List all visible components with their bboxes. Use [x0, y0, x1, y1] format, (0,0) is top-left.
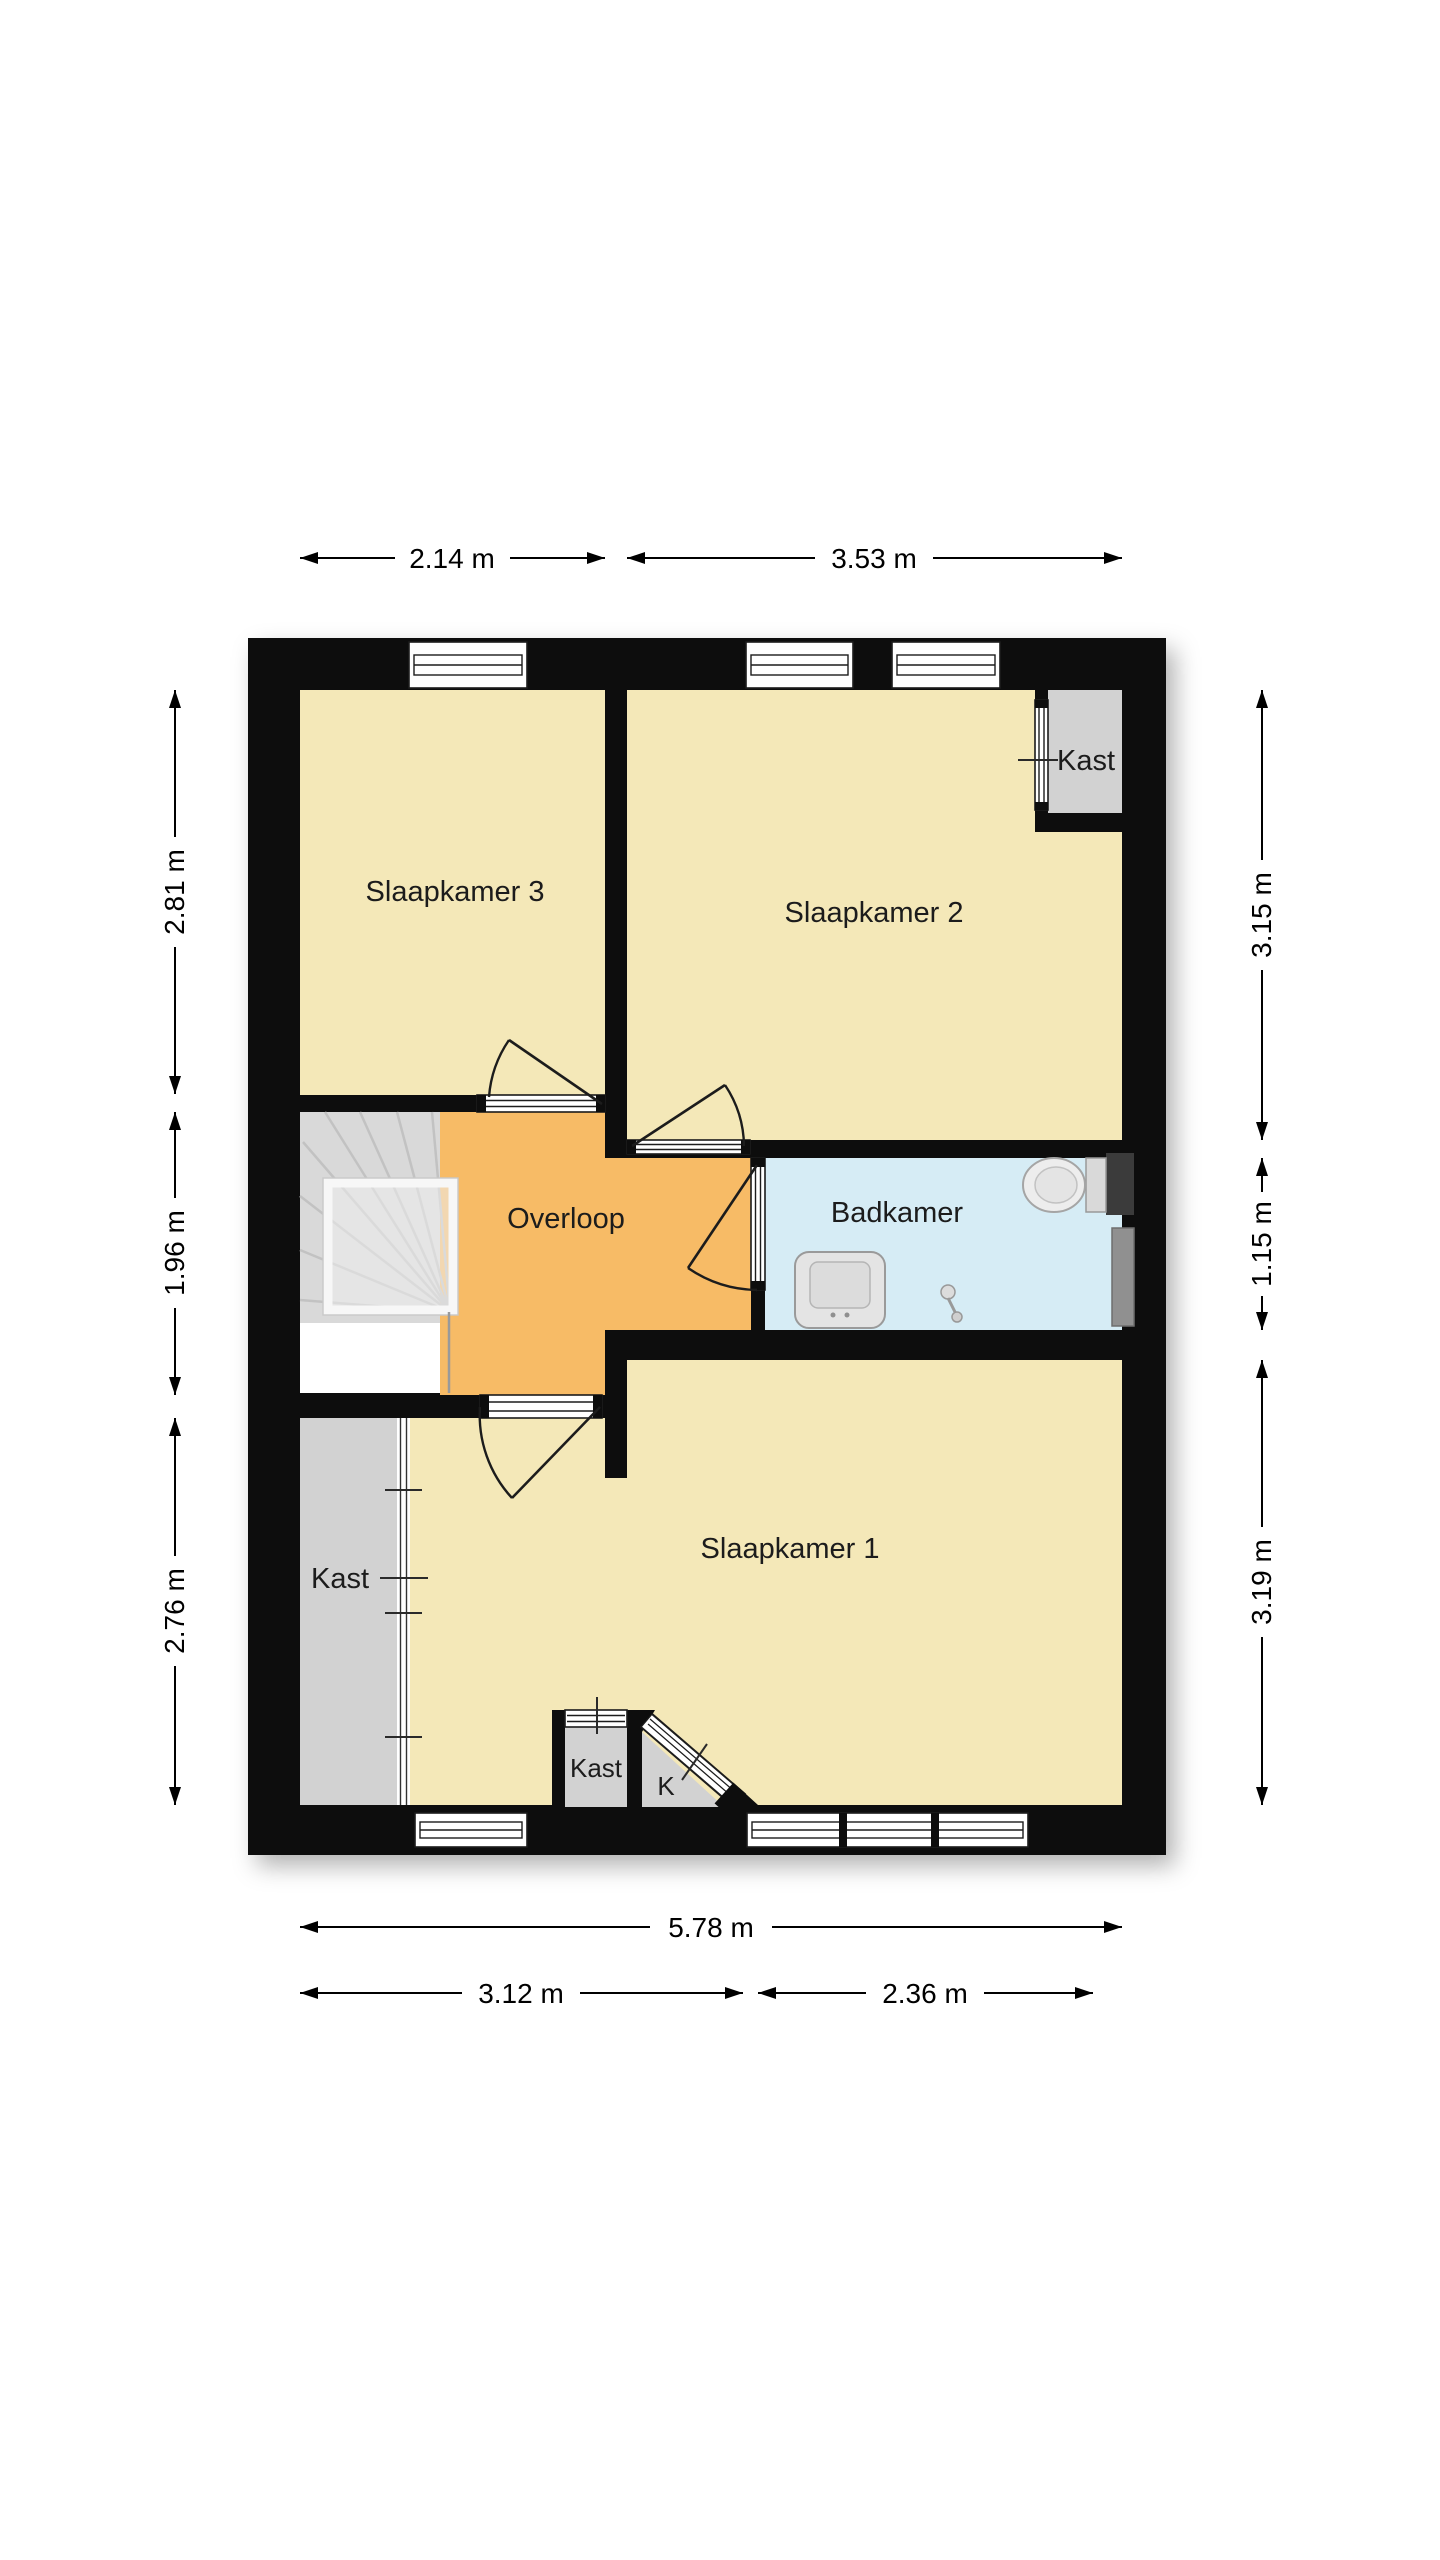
- window-mullion: [931, 1813, 939, 1847]
- toilet-fixture: [1023, 1158, 1106, 1212]
- room-label-kast-small: Kast: [570, 1753, 623, 1783]
- dim-bottom-total: 5.78 m: [668, 1912, 754, 1943]
- dim-left-top: 2.81 m: [159, 849, 190, 935]
- stair-void: [300, 1323, 440, 1393]
- room-label-kast-top-right: Kast: [1057, 745, 1115, 777]
- dim-top-right: 3.53 m: [831, 543, 917, 574]
- room-slaapkamer-1: [410, 1360, 1122, 1805]
- room-label-slaapkamer2: Slaapkamer 2: [785, 897, 964, 929]
- window-top-slaapkamer2-left: [746, 642, 853, 688]
- stairwell-railing: [328, 1183, 453, 1310]
- window-top-slaapkamer3: [409, 642, 527, 688]
- window-top-slaapkamer2-right: [892, 642, 1000, 688]
- dim-bottom-right: 2.36 m: [882, 1978, 968, 2009]
- closet-small-left-wall: [552, 1710, 565, 1807]
- dim-right-top: 3.15 m: [1246, 872, 1277, 958]
- floorplan-page: Slaapkamer 3 Slaapkamer 2 Slaapkamer 1 O…: [0, 0, 1440, 2560]
- bathroom-duct: [1112, 1228, 1134, 1326]
- window-mullion: [839, 1813, 847, 1847]
- room-label-overloop: Overloop: [507, 1203, 625, 1235]
- room-label-badkamer: Badkamer: [831, 1197, 964, 1229]
- dim-bottom-left: 3.12 m: [478, 1978, 564, 2009]
- dim-right-bottom: 3.19 m: [1246, 1539, 1277, 1625]
- window-bottom-right: [747, 1813, 1028, 1847]
- room-label-slaapkamer3: Slaapkamer 3: [366, 876, 545, 908]
- bathroom-shaft: [1106, 1153, 1134, 1215]
- room-label-slaapkamer1: Slaapkamer 1: [701, 1533, 880, 1565]
- floorplan-drawing: Slaapkamer 3 Slaapkamer 2 Slaapkamer 1 O…: [0, 0, 1440, 2560]
- room-label-k: K: [657, 1771, 675, 1801]
- dim-top-left: 2.14 m: [409, 543, 495, 574]
- room-label-kast-left: Kast: [311, 1563, 369, 1595]
- building: Slaapkamer 3 Slaapkamer 2 Slaapkamer 1 O…: [248, 638, 1166, 1855]
- dim-right-middle: 1.15 m: [1246, 1201, 1277, 1287]
- staircase: [300, 1112, 458, 1393]
- dim-left-bottom: 2.76 m: [159, 1568, 190, 1654]
- window-bottom-left: [415, 1813, 527, 1847]
- dim-left-middle: 1.96 m: [159, 1210, 190, 1296]
- closet-left: [300, 1418, 397, 1805]
- washbasin-fixture: [795, 1252, 885, 1328]
